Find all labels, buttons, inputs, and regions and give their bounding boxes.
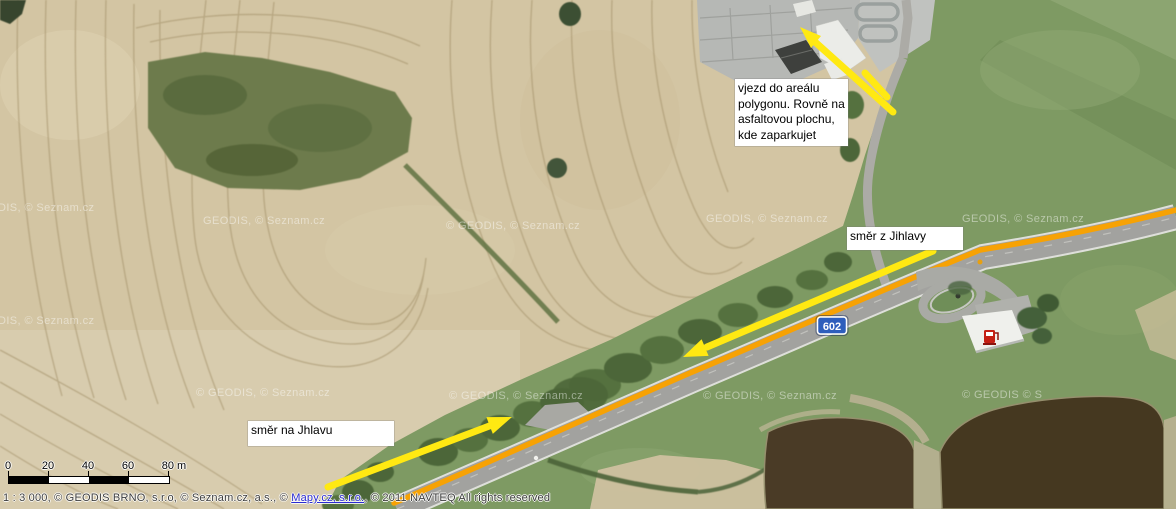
watermark-text: © GEODIS, © Seznam.cz — [703, 390, 837, 402]
pond-left — [764, 418, 914, 509]
annotation-to-jihlava: směr na Jhlavu — [248, 421, 394, 446]
from-jihlava-label: směr z Jihlavy — [850, 229, 926, 243]
watermark-text: © GEODIS © S — [962, 389, 1042, 401]
attribution-suffix: , © 2011 NAVTEQ All rights reserved — [364, 492, 550, 504]
watermark-text: GEODIS, © Seznam.cz — [962, 213, 1084, 225]
annotation-entry-note: vjezd do areálu polygonu. Rovně na asfal… — [735, 79, 848, 146]
map-canvas[interactable]: DIS, © Seznam.czGEODIS, © Seznam.cz© GEO… — [0, 0, 1176, 509]
entry-note-line: vjezd do areálu — [738, 81, 845, 97]
entry-note-line: kde zaparkujet — [738, 128, 845, 144]
watermark-text: © GEODIS, © Seznam.cz — [449, 390, 583, 402]
aerial-imagery: DIS, © Seznam.czGEODIS, © Seznam.cz© GEO… — [0, 0, 1176, 509]
scale-bar: 020406080 m — [0, 458, 220, 490]
annotation-from-jihlava: směr z Jihlavy — [847, 227, 963, 250]
road-shield-602: 602 — [816, 316, 848, 336]
scale-bar-segments — [8, 476, 170, 484]
scale-label: 80 m — [162, 460, 186, 472]
entry-note-line: asfaltovou plochu, — [738, 112, 845, 128]
mapycz-link[interactable]: Mapy.cz, s.r.o. — [291, 492, 364, 504]
entry-note-line: polygonu. Rovně na — [738, 97, 845, 113]
watermark-text: DIS, © Seznam.cz — [0, 315, 94, 327]
attribution: 1 : 3 000, © GEODIS BRNO, s.r.o, © Sezna… — [3, 492, 550, 504]
attribution-prefix: 1 : 3 000, © GEODIS BRNO, s.r.o, © Sezna… — [3, 492, 291, 504]
watermark-text: GEODIS, © Seznam.cz — [203, 215, 325, 227]
watermark-text: GEODIS, © Seznam.cz — [706, 213, 828, 225]
watermark-text: DIS, © Seznam.cz — [0, 202, 94, 214]
watermark-text: © GEODIS, © Seznam.cz — [196, 387, 330, 399]
to-jihlava-label: směr na Jhlavu — [251, 423, 332, 437]
watermark-text: © GEODIS, © Seznam.cz — [446, 220, 580, 232]
road-shield-label: 602 — [823, 321, 841, 333]
